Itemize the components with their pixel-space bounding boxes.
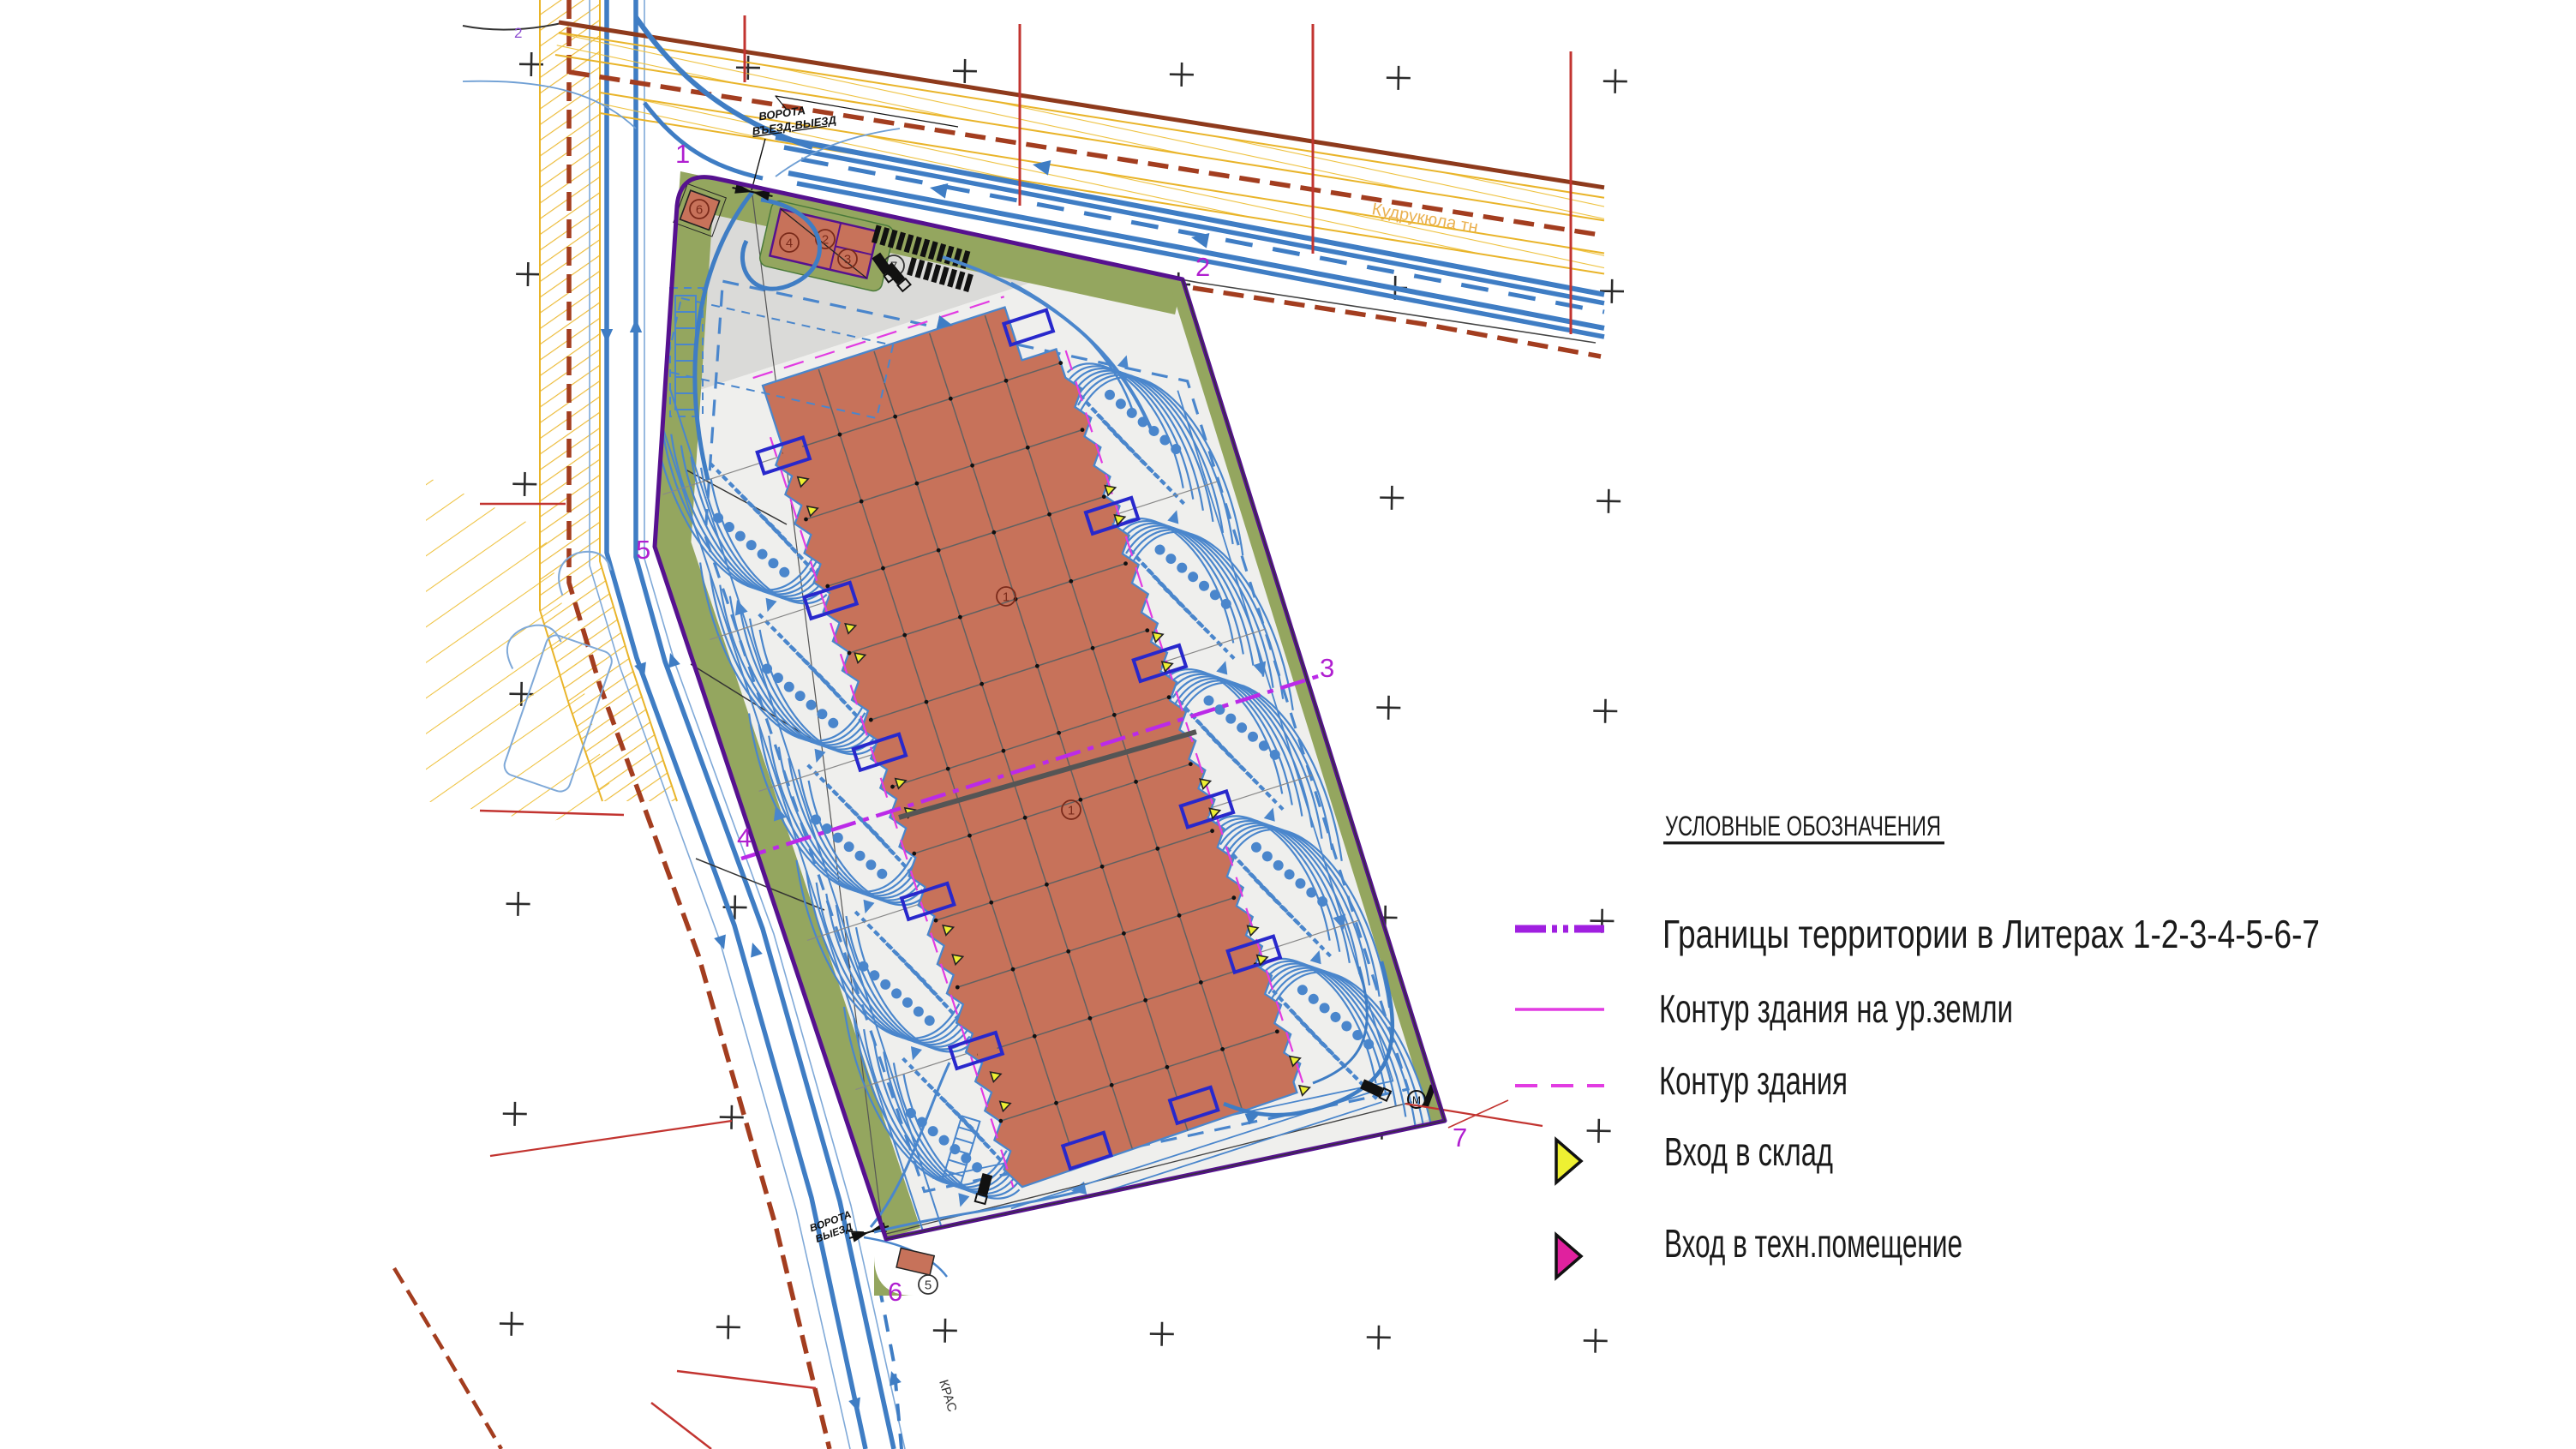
- svg-text:3: 3: [1320, 653, 1334, 683]
- svg-text:1: 1: [675, 139, 690, 169]
- svg-text:4: 4: [737, 823, 752, 853]
- svg-text:1: 1: [1003, 590, 1009, 604]
- svg-text:Вход в техн.помещение: Вход в техн.помещение: [1664, 1221, 1962, 1266]
- svg-text:6: 6: [696, 202, 703, 217]
- svg-text:1: 1: [1068, 803, 1075, 817]
- svg-text:Границы территории в Литерах 1: Границы территории в Литерах 1-2-3-4-5-6…: [1662, 912, 2320, 956]
- svg-text:3: 3: [844, 252, 851, 266]
- svg-text:Вход в склад: Вход в склад: [1664, 1129, 1833, 1174]
- svg-text:7: 7: [1453, 1123, 1467, 1153]
- svg-text:Контур здания на ур.земли: Контур здания на ур.земли: [1659, 986, 2013, 1031]
- svg-text:4: 4: [786, 236, 793, 250]
- svg-text:Контур здания: Контур здания: [1659, 1058, 1848, 1103]
- svg-text:2: 2: [822, 232, 829, 247]
- svg-text:2: 2: [1195, 252, 1210, 282]
- svg-text:5: 5: [636, 535, 650, 565]
- svg-text:6: 6: [888, 1277, 902, 1307]
- svg-text:УСЛОВНЫЕ ОБОЗНАЧЕНИЯ: УСЛОВНЫЕ ОБОЗНАЧЕНИЯ: [1665, 811, 1941, 841]
- svg-text:5: 5: [925, 1278, 932, 1292]
- svg-text:2: 2: [514, 25, 522, 41]
